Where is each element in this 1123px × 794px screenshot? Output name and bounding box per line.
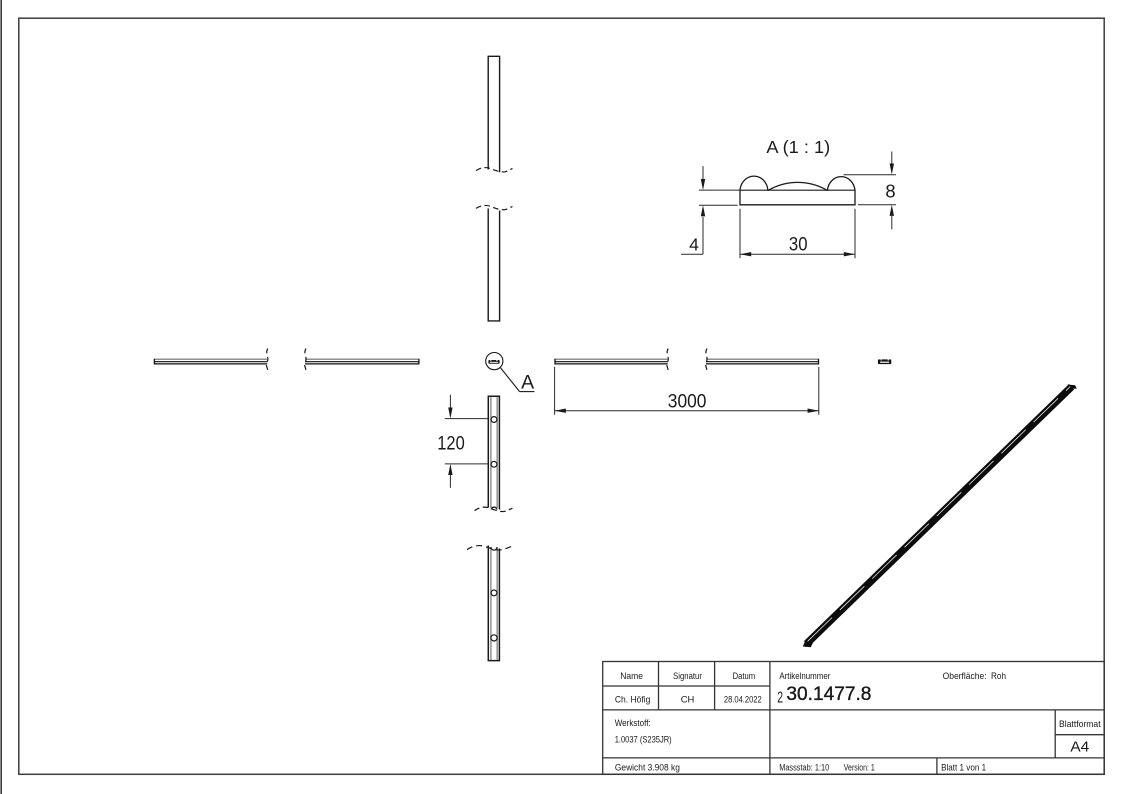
svg-text:120: 120 <box>437 434 464 455</box>
svg-text:Signatur: Signatur <box>673 671 702 682</box>
svg-text:Blattformat: Blattformat <box>1059 718 1101 729</box>
svg-text:Blatt 1 von 1: Blatt 1 von 1 <box>941 762 986 773</box>
svg-text:Gewicht 3.908 kg: Gewicht 3.908 kg <box>615 762 680 773</box>
svg-text:CH: CH <box>681 695 695 706</box>
svg-text:Name: Name <box>620 671 643 682</box>
svg-text:A4: A4 <box>1070 740 1089 756</box>
svg-text:A (1 : 1): A (1 : 1) <box>766 137 830 157</box>
svg-text:1.0037 (S235JR): 1.0037 (S235JR) <box>615 735 672 746</box>
svg-text:Massstab: 1:10: Massstab: 1:10 <box>779 762 829 773</box>
svg-text:Roh: Roh <box>991 670 1006 681</box>
svg-text:Werkstoff:: Werkstoff: <box>615 718 651 729</box>
svg-text:28.04.2022: 28.04.2022 <box>724 695 762 706</box>
svg-text:3000: 3000 <box>668 392 707 413</box>
svg-text:30.1477.8: 30.1477.8 <box>786 683 871 705</box>
svg-text:A: A <box>521 371 534 393</box>
svg-text:2: 2 <box>777 690 783 707</box>
svg-text:30: 30 <box>789 235 808 256</box>
svg-text:Oberfläche:: Oberfläche: <box>943 670 987 681</box>
svg-text:Artikelnummer: Artikelnummer <box>779 670 830 681</box>
svg-text:Datum: Datum <box>733 671 756 682</box>
svg-text:8: 8 <box>885 181 895 202</box>
svg-text:4: 4 <box>689 235 699 255</box>
svg-text:Version: 1: Version: 1 <box>844 762 875 773</box>
svg-text:Ch. Höfig: Ch. Höfig <box>615 695 651 706</box>
